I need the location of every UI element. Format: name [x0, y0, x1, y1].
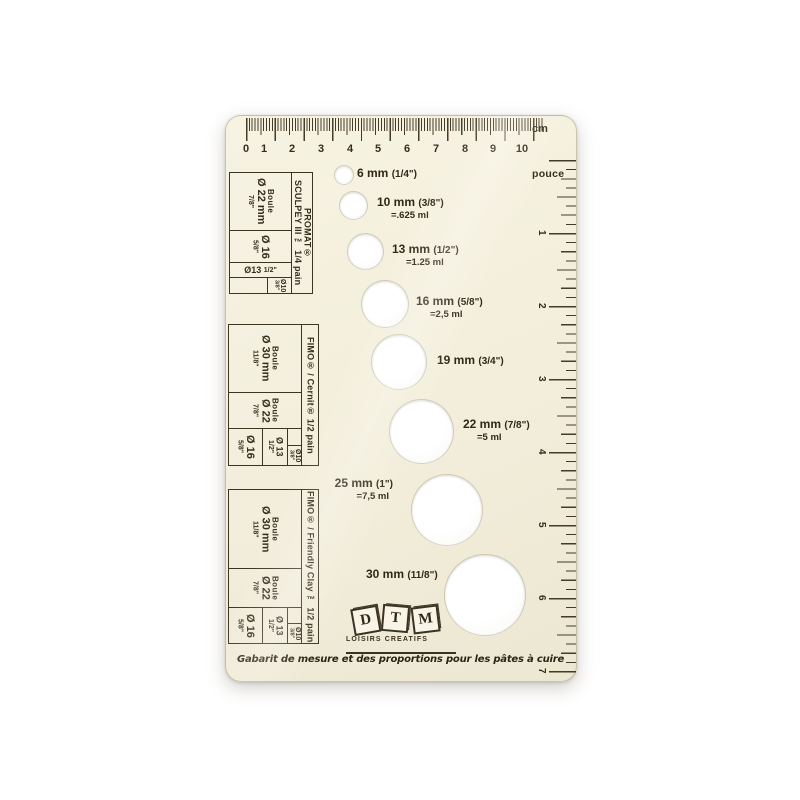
inch-number: 2	[535, 297, 547, 315]
cm-number: 9	[482, 143, 504, 155]
hole-volume: =7,5 ml	[321, 491, 389, 502]
hole-size: 22 mm	[463, 417, 501, 431]
logo-block-t: T	[381, 604, 410, 633]
logo-block-d: D	[350, 605, 381, 636]
hole-fraction: (3/8")	[418, 198, 443, 209]
inch-number: 1	[535, 224, 547, 242]
inch-number: 3	[535, 370, 547, 388]
hole-label-16mm: 16 mm (5/8") =2,5 ml	[416, 294, 483, 320]
cell-diameter: Ø 16	[243, 614, 255, 638]
cell-10-slot: Ø10 3/8"	[288, 429, 301, 465]
cell-13: Ø 13 1/2"	[263, 608, 288, 643]
hole-fraction: (5/8")	[457, 297, 482, 308]
measuring-template-card: 0 1 2 3 4 5 6 7 8 9 10 cm pouce 1 2 3 4 …	[225, 115, 577, 682]
cell-10: Ø10 3/8"	[288, 445, 301, 465]
hole-label-22mm: 22 mm (7/8") =5 ml	[463, 417, 530, 443]
cm-number: 5	[367, 143, 389, 155]
hole-size: 13 mm	[392, 242, 430, 256]
cell-16: Ø 16 5/8"	[229, 608, 263, 643]
hole-volume: =.625 ml	[391, 210, 444, 221]
hole-size: 25 mm	[335, 476, 373, 490]
cell-diameter: Ø10	[294, 449, 301, 462]
cell-diameter: Ø 30 mm	[259, 506, 271, 552]
cell-fraction: 3/8"	[288, 627, 294, 640]
inch-number: 6	[535, 589, 547, 607]
cell-13: Ø13 1/2"	[230, 263, 291, 278]
hole-size: 6 mm	[357, 166, 388, 180]
cell-diameter: Ø 13	[274, 437, 283, 457]
brand-line: SCULPEY III ™ 1/4 pain	[293, 180, 302, 285]
hole-size: 19 mm	[437, 353, 475, 367]
cell-16: Ø 16 5/8"	[229, 429, 263, 465]
cm-number: 6	[396, 143, 418, 155]
cell-16: Ø 16 5/8"	[230, 231, 291, 263]
cell-fraction: 1/2"	[267, 437, 274, 457]
hole-label-13mm: 13 mm (1/2") =1.25 ml	[392, 242, 459, 268]
cell-10-slot: Ø10 3/8"	[288, 608, 301, 643]
hole-25mm	[412, 475, 482, 545]
cell-fraction: 3/8"	[288, 449, 294, 462]
hole-label-30mm: 30 mm (11/8")	[366, 567, 438, 581]
dtm-logo: D T M LOISIRS CREATIFS	[344, 605, 462, 657]
cell-diameter: Ø 22	[259, 576, 271, 600]
cell-fraction: 5/8"	[236, 614, 243, 638]
logo-subtitle: LOISIRS CREATIFS	[346, 636, 462, 643]
cell-diameter: Ø 22	[259, 398, 271, 422]
brand-strip-fimo-friendly-clay: FIMO® / Friendly Clay ™ 1/2 pain	[302, 490, 318, 643]
cell-diameter: Ø10	[294, 627, 301, 640]
cm-number: 7	[425, 143, 447, 155]
brand-strip-fimo-cernit: FIMO® / Cernit® 1/2 pain	[302, 325, 318, 465]
cm-unit-label: cm	[532, 123, 548, 135]
inch-number: 5	[535, 516, 547, 534]
caption-text: Gabarit de mesure et des proportions pou…	[237, 654, 549, 665]
inch-tick-marks-inch	[549, 160, 576, 676]
hole-size: 30 mm	[366, 567, 404, 581]
cell-fraction: 1/2"	[267, 616, 274, 636]
hole-label-10mm: 10 mm (3/8") =.625 ml	[377, 195, 444, 221]
section-sculpey: Boule Ø 22 mm 7/8" Ø 16 5/8" Ø13 1/2"	[229, 172, 313, 294]
hole-volume: =2,5 ml	[430, 309, 483, 320]
product-photo: 0 1 2 3 4 5 6 7 8 9 10 cm pouce 1 2 3 4 …	[0, 0, 800, 800]
hole-size: 16 mm	[416, 294, 454, 308]
cell-diameter: Ø13	[244, 265, 261, 275]
cm-number: 2	[281, 143, 303, 155]
hole-size: 10 mm	[377, 195, 415, 209]
hole-6mm	[335, 166, 353, 184]
hole-label-25mm: 25 mm (1") =7,5 ml	[321, 476, 393, 502]
cell-name: Boule	[270, 335, 278, 381]
hole-16mm	[362, 281, 408, 327]
cell-fraction: 11/8"	[251, 335, 258, 381]
section-fimo-friendly-clay: Boule Ø 30 mm 11/8" Boule Ø 22 7/8"	[228, 489, 319, 644]
cell-fraction: 7/8"	[247, 178, 254, 224]
cell-diameter: Ø 13	[274, 616, 283, 636]
brand-line: FIMO® / Friendly Clay ™ 1/2 pain	[305, 491, 314, 642]
cell-fraction: 7/8"	[251, 398, 258, 422]
cell-boule-30: Boule Ø 30 mm 11/8"	[229, 325, 301, 393]
section-fimo-cernit: Boule Ø 30 mm 11/8" Boule Ø 22 7/8"	[228, 324, 319, 466]
cell-name: Boule	[270, 506, 278, 552]
hole-13mm	[348, 234, 383, 269]
brand-strip-sculpey: PROMAT® SCULPEY III ™ 1/4 pain	[292, 173, 312, 293]
cell-diameter: Ø 16	[258, 235, 270, 259]
hole-fraction: (1")	[376, 479, 393, 490]
cell-10-row: Ø10 3/8"	[230, 278, 291, 293]
cell-boule-30: Boule Ø 30 mm 11/8"	[229, 490, 301, 569]
inch-number: 4	[535, 443, 547, 461]
hole-label-6mm: 6 mm (1/4")	[357, 166, 417, 180]
cm-number: 10	[511, 143, 533, 155]
hole-volume: =5 ml	[477, 432, 530, 443]
cell-fraction: 1/2"	[264, 267, 277, 274]
hole-fraction: (1/4")	[392, 169, 417, 180]
cell-fraction: 5/8"	[251, 235, 258, 259]
hole-label-19mm: 19 mm (3/4")	[437, 353, 504, 367]
brand-line: FIMO® / Cernit® 1/2 pain	[305, 337, 314, 454]
hole-19mm	[372, 335, 426, 389]
cell-10: Ø10 3/8"	[267, 278, 291, 293]
hole-volume: =1.25 ml	[406, 257, 459, 268]
hole-fraction: (3/4")	[478, 356, 503, 367]
hole-22mm	[390, 400, 453, 463]
cell-boule-22: Boule Ø 22 7/8"	[229, 393, 301, 429]
logo-block-m: M	[411, 604, 441, 634]
cell-fraction: 3/8"	[273, 279, 279, 292]
hole-fraction: (7/8")	[504, 420, 529, 431]
cell-fraction: 7/8"	[251, 576, 258, 600]
brand-line: PROMAT®	[302, 180, 311, 285]
hole-10mm	[340, 192, 367, 219]
cell-boule-22: Boule Ø 22 mm 7/8"	[230, 173, 291, 231]
cell-diameter: Ø 16	[243, 435, 255, 459]
cell-fraction: 5/8"	[236, 435, 243, 459]
dtm-logo-blocks: D T M	[352, 605, 462, 632]
cell-13: Ø 13 1/2"	[263, 429, 288, 465]
cell-boule-22: Boule Ø 22 7/8"	[229, 569, 301, 608]
cell-name: Boule	[270, 398, 278, 422]
cell-diameter: Ø 30 mm	[259, 335, 271, 381]
cm-number: 3	[310, 143, 332, 155]
cell-fraction: 11/8"	[251, 506, 258, 552]
cell-name: Boule	[270, 576, 278, 600]
cell-diameter: Ø 22 mm	[254, 178, 266, 224]
cm-number: 1	[253, 143, 275, 155]
cm-number: 4	[339, 143, 361, 155]
hole-fraction: (11/8")	[407, 570, 437, 581]
hole-fraction: (1/2")	[433, 245, 458, 256]
cell-10: Ø10 3/8"	[288, 623, 301, 643]
cell-name: Boule	[266, 178, 274, 224]
cm-number: 8	[454, 143, 476, 155]
cm-tick-marks-cm	[246, 118, 545, 141]
cell-diameter: Ø10	[279, 279, 286, 292]
